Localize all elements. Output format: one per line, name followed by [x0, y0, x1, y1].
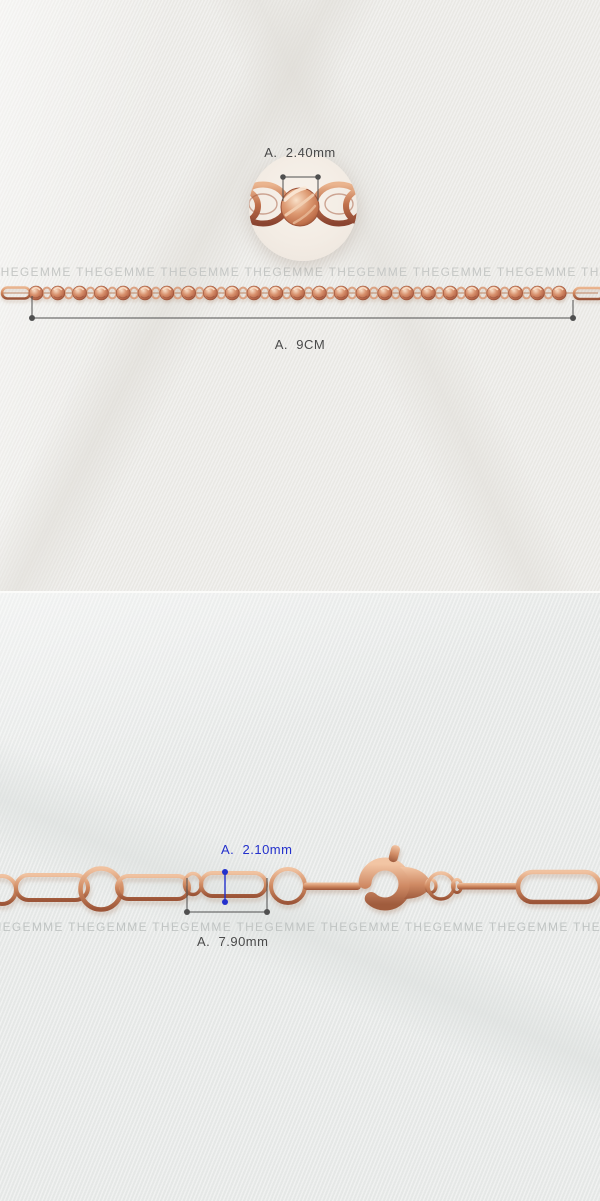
measure-bracket-2-40mm	[280, 174, 321, 201]
bead-chain-and-measurements	[0, 0, 600, 591]
paperclip-chain	[0, 844, 600, 909]
bead-chain	[2, 286, 600, 300]
bead-size-label: A. 2.40mm	[0, 146, 600, 160]
chain-length-label: A. 9CM	[0, 338, 600, 352]
measured-link	[201, 873, 266, 896]
watermark-row-bottom: THEGEMME THEGEMME THEGEMME THEGEMME THEG…	[0, 921, 600, 933]
photo-top-bead-chain: THEGEMME THEGEMME THEGEMME THEGEMME THEG…	[0, 0, 600, 591]
link-height-label: A. 2.10mm	[221, 843, 292, 857]
clasp-chain-and-measurements	[0, 593, 600, 1201]
photo-bottom-clasp-chain: THEGEMME THEGEMME THEGEMME THEGEMME THEG…	[0, 593, 600, 1201]
link-length-label: A. 7.90mm	[197, 935, 268, 949]
product-detail-image: THEGEMME THEGEMME THEGEMME THEGEMME THEG…	[0, 0, 600, 1201]
lobster-clasp	[365, 844, 436, 904]
